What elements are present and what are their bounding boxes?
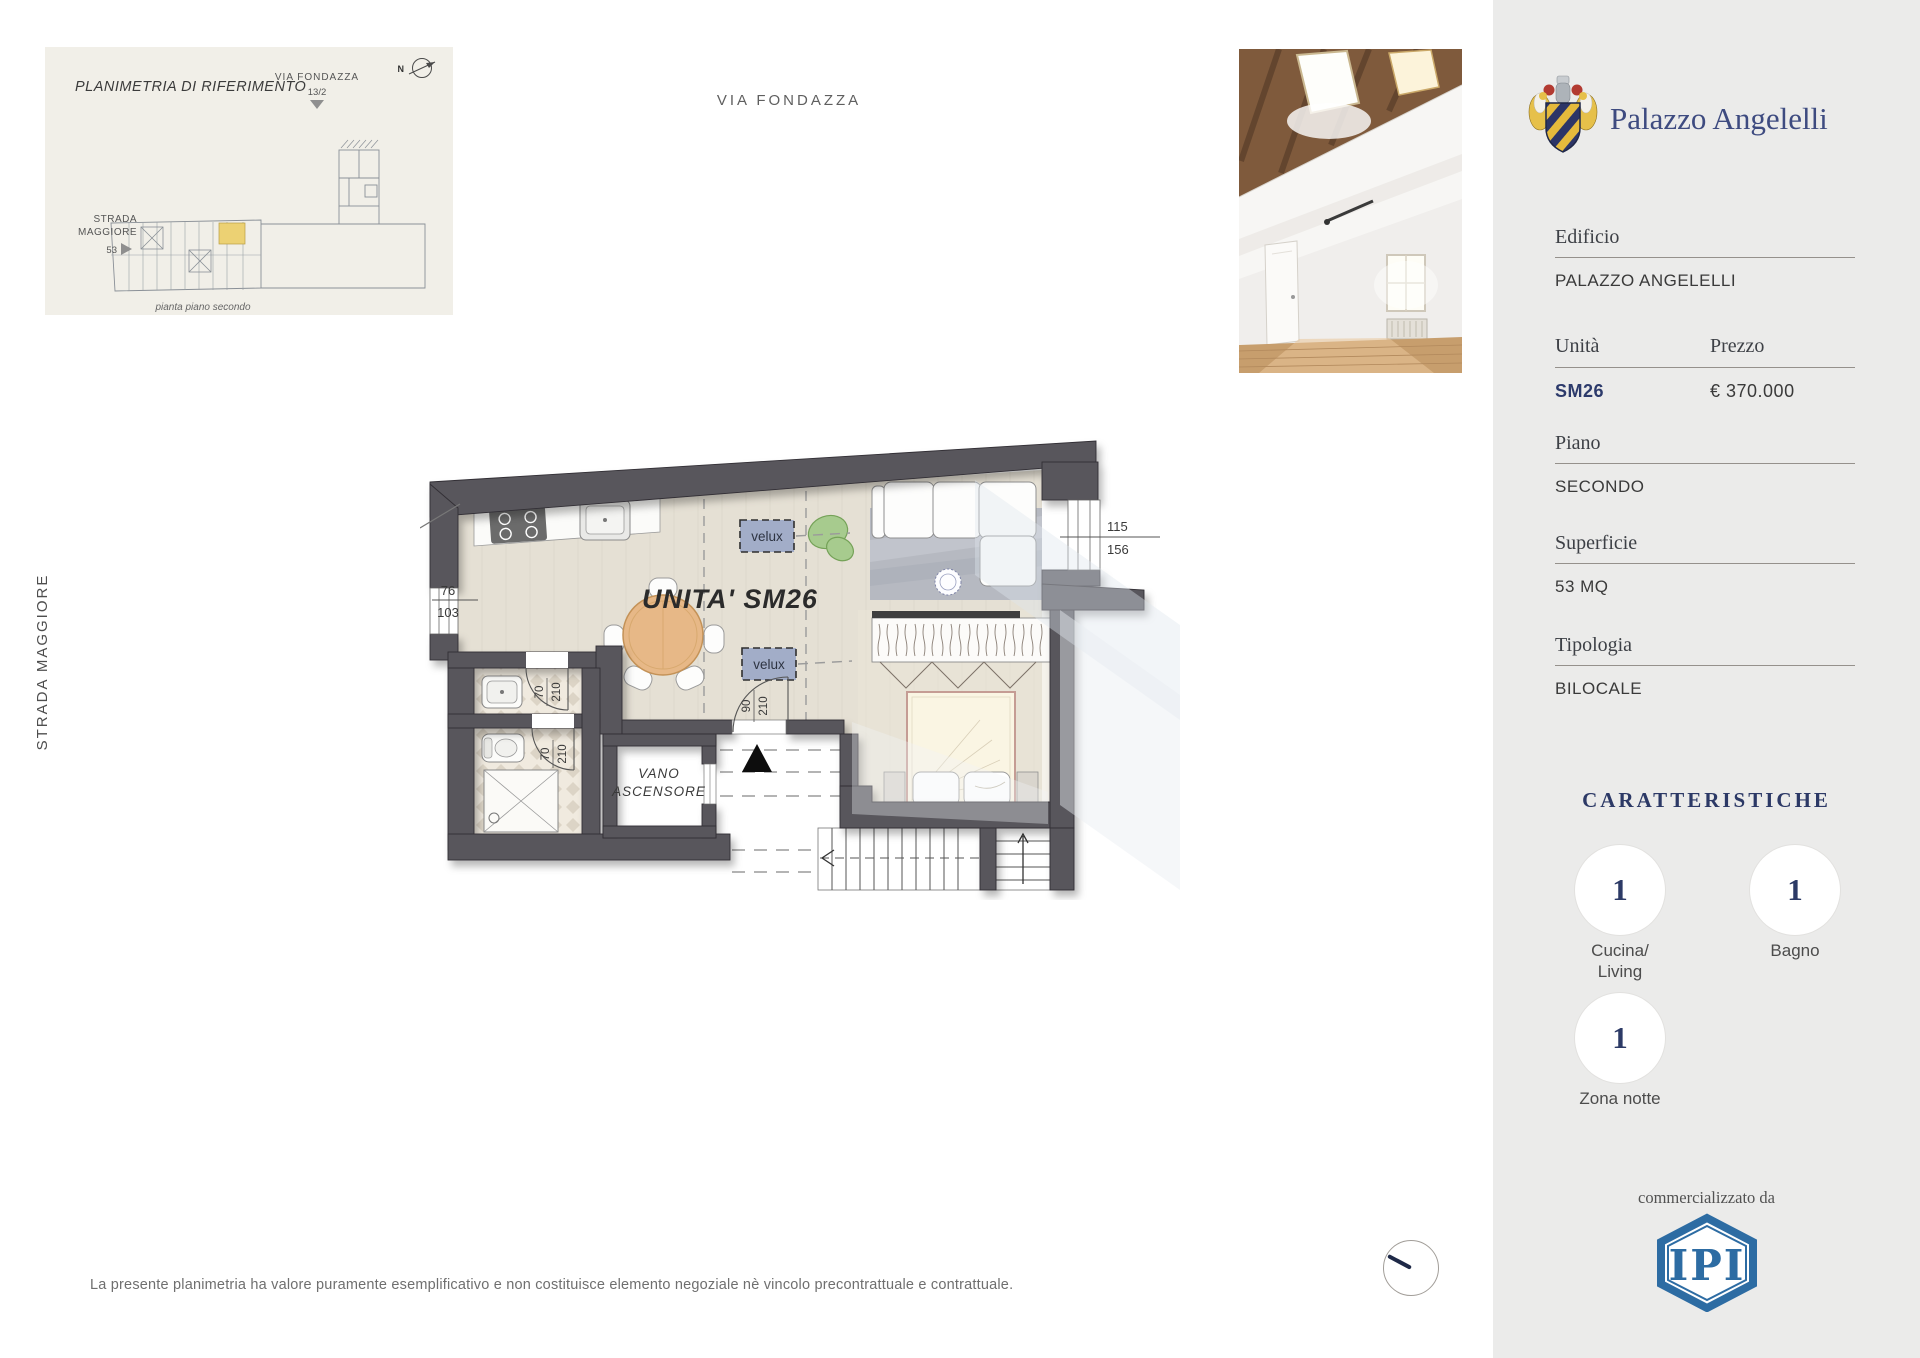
entry-arrow-icon	[742, 744, 772, 772]
svg-text:210: 210	[551, 682, 563, 701]
field-value: PALAZZO ANGELELLI	[1555, 271, 1855, 291]
via-fondazza-label: VIA FONDAZZA	[589, 92, 989, 109]
field-divider	[1555, 367, 1855, 368]
coat-of-arms-icon	[1526, 70, 1600, 158]
elevator-label-line1: VANO	[638, 766, 680, 781]
feature-count-bagno: 1	[1750, 845, 1840, 935]
brochure-page: PLANIMETRIA DI RIFERIMENTO VIA FONDAZZA …	[0, 0, 1920, 1358]
field-value: 53 MQ	[1555, 577, 1855, 597]
commercial-label: commercializzato da	[1493, 1188, 1920, 1208]
feature-label-line: Cucina/	[1545, 940, 1695, 961]
interior-photo-image	[1239, 49, 1462, 373]
ref-entrance-arrow-right-icon	[121, 243, 132, 255]
unit-label: UNITA' SM26	[642, 584, 818, 614]
ref-highlighted-unit	[219, 223, 245, 244]
field-edificio: Edificio PALAZZO ANGELELLI	[1555, 226, 1855, 291]
field-superficie: Superficie 53 MQ	[1555, 532, 1855, 597]
strada-maggiore-label: STRADA MAGGIORE	[34, 552, 54, 772]
feature-label-line: Bagno	[1720, 940, 1870, 961]
ref-via-fondazza-label: VIA FONDAZZA	[275, 72, 359, 83]
field-divider	[1555, 257, 1855, 258]
ref-strada-line2: MAGGIORE	[78, 227, 137, 238]
field-divider	[1555, 463, 1855, 464]
field-tipologia: Tipologia BILOCALE	[1555, 634, 1855, 699]
svg-text:76: 76	[441, 583, 455, 598]
floor-plan-drawing: velux velux	[420, 420, 1180, 900]
ref-entrance-arrow-down-icon	[310, 100, 324, 109]
orientation-dial-icon	[1383, 1240, 1439, 1296]
stairs	[818, 828, 1050, 890]
door	[1265, 241, 1299, 345]
dial-needle	[1387, 1254, 1412, 1270]
ref-strada-line1: STRADA	[93, 214, 137, 225]
velux-label: velux	[753, 657, 785, 672]
feature-label-zona-notte: Zona notte	[1545, 1088, 1695, 1109]
svg-text:70: 70	[534, 686, 546, 699]
velux-label: velux	[751, 529, 783, 544]
velux-skylight: velux	[740, 520, 794, 552]
brand-title: Palazzo Angelelli	[1610, 101, 1828, 137]
field-label: Unità	[1555, 335, 1599, 357]
feature-count-cucina: 1	[1575, 845, 1665, 935]
feature-label-line: Zona notte	[1545, 1088, 1695, 1109]
svg-text:156: 156	[1107, 542, 1129, 557]
svg-text:115: 115	[1107, 519, 1128, 534]
svg-text:70: 70	[540, 748, 552, 761]
field-label: Tipologia	[1555, 634, 1855, 657]
feature-label-bagno: Bagno	[1720, 940, 1870, 961]
ref-caption: pianta piano secondo	[154, 302, 251, 313]
ref-building-outline	[111, 140, 425, 291]
field-unita-prezzo: Unità Prezzo SM26 € 370.000	[1555, 335, 1855, 407]
ipi-logo-text: IPI	[1668, 1241, 1745, 1290]
svg-text:103: 103	[437, 605, 459, 620]
radiator	[1387, 319, 1427, 339]
field-divider	[1555, 665, 1855, 666]
field-label: Prezzo	[1710, 335, 1764, 358]
reference-plan-drawing: PLANIMETRIA DI RIFERIMENTO VIA FONDAZZA …	[45, 47, 453, 315]
washbasin-icon	[482, 676, 522, 708]
svg-text:90: 90	[741, 700, 753, 713]
feature-count-zona-notte: 1	[1575, 993, 1665, 1083]
shower-icon	[484, 770, 558, 832]
svg-text:210: 210	[758, 696, 770, 715]
svg-text:210: 210	[557, 744, 569, 763]
ipi-logo: IPI	[1652, 1212, 1762, 1312]
compass-icon: N	[398, 59, 436, 78]
field-value: BILOCALE	[1555, 679, 1855, 699]
ref-street-number: 13/2	[308, 87, 327, 98]
floor-plan: velux velux	[420, 420, 1180, 900]
unit-code: SM26	[1555, 381, 1604, 401]
velux-skylight: velux	[742, 648, 796, 680]
feature-label-line: Living	[1545, 961, 1695, 982]
elevator-label-line2: ASCENSORE	[611, 784, 706, 799]
toilet-icon	[482, 734, 524, 762]
north-label: N	[398, 64, 405, 74]
field-label: Piano	[1555, 432, 1855, 455]
price-value: € 370.000	[1710, 381, 1795, 402]
info-sidebar: Palazzo Angelelli Edificio PALAZZO ANGEL…	[1493, 0, 1920, 1358]
reference-plan-title: PLANIMETRIA DI RIFERIMENTO	[75, 79, 306, 95]
field-piano: Piano SECONDO	[1555, 432, 1855, 497]
field-label: Edificio	[1555, 226, 1855, 249]
interior-photo	[1239, 49, 1462, 373]
field-value: SECONDO	[1555, 477, 1855, 497]
pouf	[935, 569, 961, 595]
ref-strada-number: 53	[106, 245, 117, 256]
reference-plan-panel: PLANIMETRIA DI RIFERIMENTO VIA FONDAZZA …	[45, 47, 453, 315]
field-divider	[1555, 563, 1855, 564]
disclaimer-text: La presente planimetria ha valore purame…	[90, 1277, 1240, 1293]
field-label: Superficie	[1555, 532, 1855, 555]
caratteristiche-title: CARATTERISTICHE	[1493, 788, 1920, 813]
feature-label-cucina: Cucina/ Living	[1545, 940, 1695, 982]
